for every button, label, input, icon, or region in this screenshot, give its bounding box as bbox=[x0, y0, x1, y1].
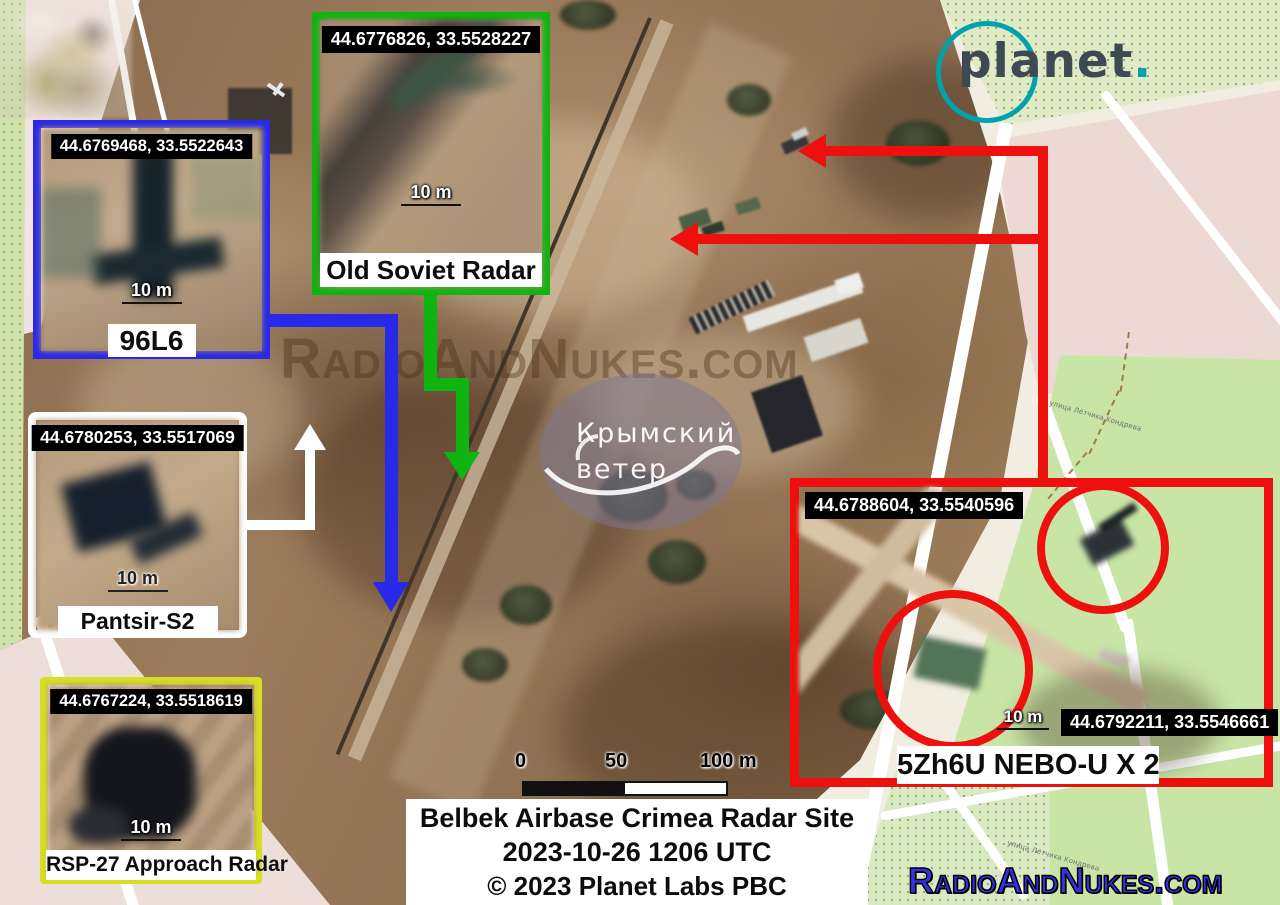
inset-title-label: Old Soviet Radar bbox=[320, 253, 542, 287]
inset-nebo-u: 44.6788604, 33.5540596 44.6792211, 33.55… bbox=[790, 478, 1273, 787]
scale-10m-text: 10 m bbox=[117, 568, 158, 588]
scale-10m-line bbox=[997, 728, 1049, 730]
wave-swoosh-icon bbox=[540, 374, 742, 530]
scale-10m-line bbox=[108, 590, 168, 592]
vegetation-tint bbox=[41, 188, 101, 278]
faded-photo-watermark bbox=[0, 0, 132, 118]
scale-10m-text: 10 m bbox=[410, 182, 451, 202]
planet-logo-word: planet bbox=[958, 34, 1133, 89]
corner-watermark: RadioAndNukes.com bbox=[908, 860, 1222, 902]
crimean-wind-watermark: Крымский ветер bbox=[540, 374, 742, 530]
scale-10m-line bbox=[401, 204, 461, 206]
inset-pantsir-s2: 44.6780253, 33.5517069 10 m Pantsir-S2 bbox=[28, 412, 247, 638]
vegetation-tint bbox=[191, 158, 261, 218]
blue-arrowhead-down-icon bbox=[373, 582, 409, 612]
blue-arrow-segment bbox=[385, 314, 398, 582]
inset-title-label: RSP-27 Approach Radar bbox=[46, 850, 256, 880]
radar-crop-art bbox=[36, 420, 239, 630]
inset-old-soviet-radar: 44.6776826, 33.5528227 10 m Old Soviet R… bbox=[312, 12, 550, 295]
scalebar-white-half bbox=[625, 783, 726, 794]
red-arrow-segment bbox=[826, 146, 1048, 156]
crimean-wind-line1: Крымский bbox=[576, 418, 736, 449]
crimean-wind-line2: ветер bbox=[576, 454, 668, 485]
inset-title-label: Pantsir-S2 bbox=[58, 606, 218, 636]
vehicle bbox=[1098, 648, 1130, 669]
radar-shape bbox=[68, 805, 128, 845]
radar-crop-art bbox=[48, 685, 254, 876]
blue-arrow-segment bbox=[268, 314, 398, 327]
scale-10m-text: 10 m bbox=[130, 817, 171, 837]
scale-10m-line bbox=[121, 839, 181, 841]
caption-datetime: 2023-10-26 1206 UTC bbox=[406, 835, 868, 869]
inset-rsp-27: 44.6767224, 33.5518619 10 m RSP-27 Appro… bbox=[40, 677, 262, 884]
caption-copyright: © 2023 Planet Labs PBC bbox=[406, 869, 868, 903]
inset-96l6: 44.6769468, 33.5522643 10 m 96L6 bbox=[33, 120, 270, 359]
radar-crop-art bbox=[320, 20, 542, 287]
scale-10m-line bbox=[122, 302, 182, 304]
scalebar-tick-50: 50 bbox=[605, 750, 627, 773]
scale-10m-label: 10 m bbox=[121, 817, 181, 841]
planet-logo-text: planet. bbox=[958, 34, 1152, 89]
white-arrow-segment bbox=[305, 446, 315, 530]
coordinates-label: 44.6769468, 33.5522643 bbox=[51, 134, 253, 159]
green-arrow-segment bbox=[424, 293, 437, 391]
coordinates-label: 44.6780253, 33.5517069 bbox=[31, 425, 244, 451]
scale-10m-label: 10 m bbox=[108, 568, 168, 592]
scale-10m-text: 10 m bbox=[1004, 707, 1043, 726]
inset-title-label: 96L6 bbox=[108, 324, 196, 357]
scale-10m-text: 10 m bbox=[131, 280, 172, 300]
scale-10m-label: 10 m bbox=[997, 707, 1049, 730]
radar-crop-art bbox=[41, 128, 262, 351]
coordinates-label: 44.6776826, 33.5528227 bbox=[322, 26, 540, 53]
coordinates-label: 44.6788604, 33.5540596 bbox=[805, 492, 1023, 519]
coordinates-label: 44.6767224, 33.5518619 bbox=[50, 689, 252, 714]
white-arrowhead-up-icon bbox=[294, 424, 326, 450]
scalebar-black-half bbox=[524, 783, 625, 794]
scalebar-tick-100m: 100 m bbox=[700, 750, 757, 773]
scale-10m-label: 10 m bbox=[122, 280, 182, 304]
scale-10m-label: 10 m bbox=[401, 182, 461, 206]
scalebar-bar bbox=[522, 781, 728, 796]
red-arrowhead-left-icon bbox=[670, 222, 698, 256]
green-arrowhead-down-icon bbox=[444, 452, 480, 480]
caption-title: Belbek Airbase Crimea Radar Site bbox=[406, 801, 868, 835]
target-circle bbox=[1037, 482, 1169, 614]
caption-box: Belbek Airbase Crimea Radar Site 2023-10… bbox=[406, 799, 868, 905]
red-arrow-vertical-segment bbox=[1038, 146, 1048, 487]
coordinates-label: 44.6792211, 33.5546661 bbox=[1061, 709, 1278, 736]
red-arrow-segment bbox=[698, 234, 1048, 244]
red-arrowhead-left-icon bbox=[798, 134, 826, 168]
annotated-satellite-image: улица Лётчика Кондрева улица Лётчика Кон… bbox=[0, 0, 1280, 905]
green-arrow-segment bbox=[456, 378, 469, 456]
scalebar-tick-0: 0 bbox=[515, 750, 526, 773]
planet-logo-dot: . bbox=[1133, 34, 1152, 89]
inset-title-label: 5Zh6U NEBO-U X 2 bbox=[897, 746, 1159, 784]
